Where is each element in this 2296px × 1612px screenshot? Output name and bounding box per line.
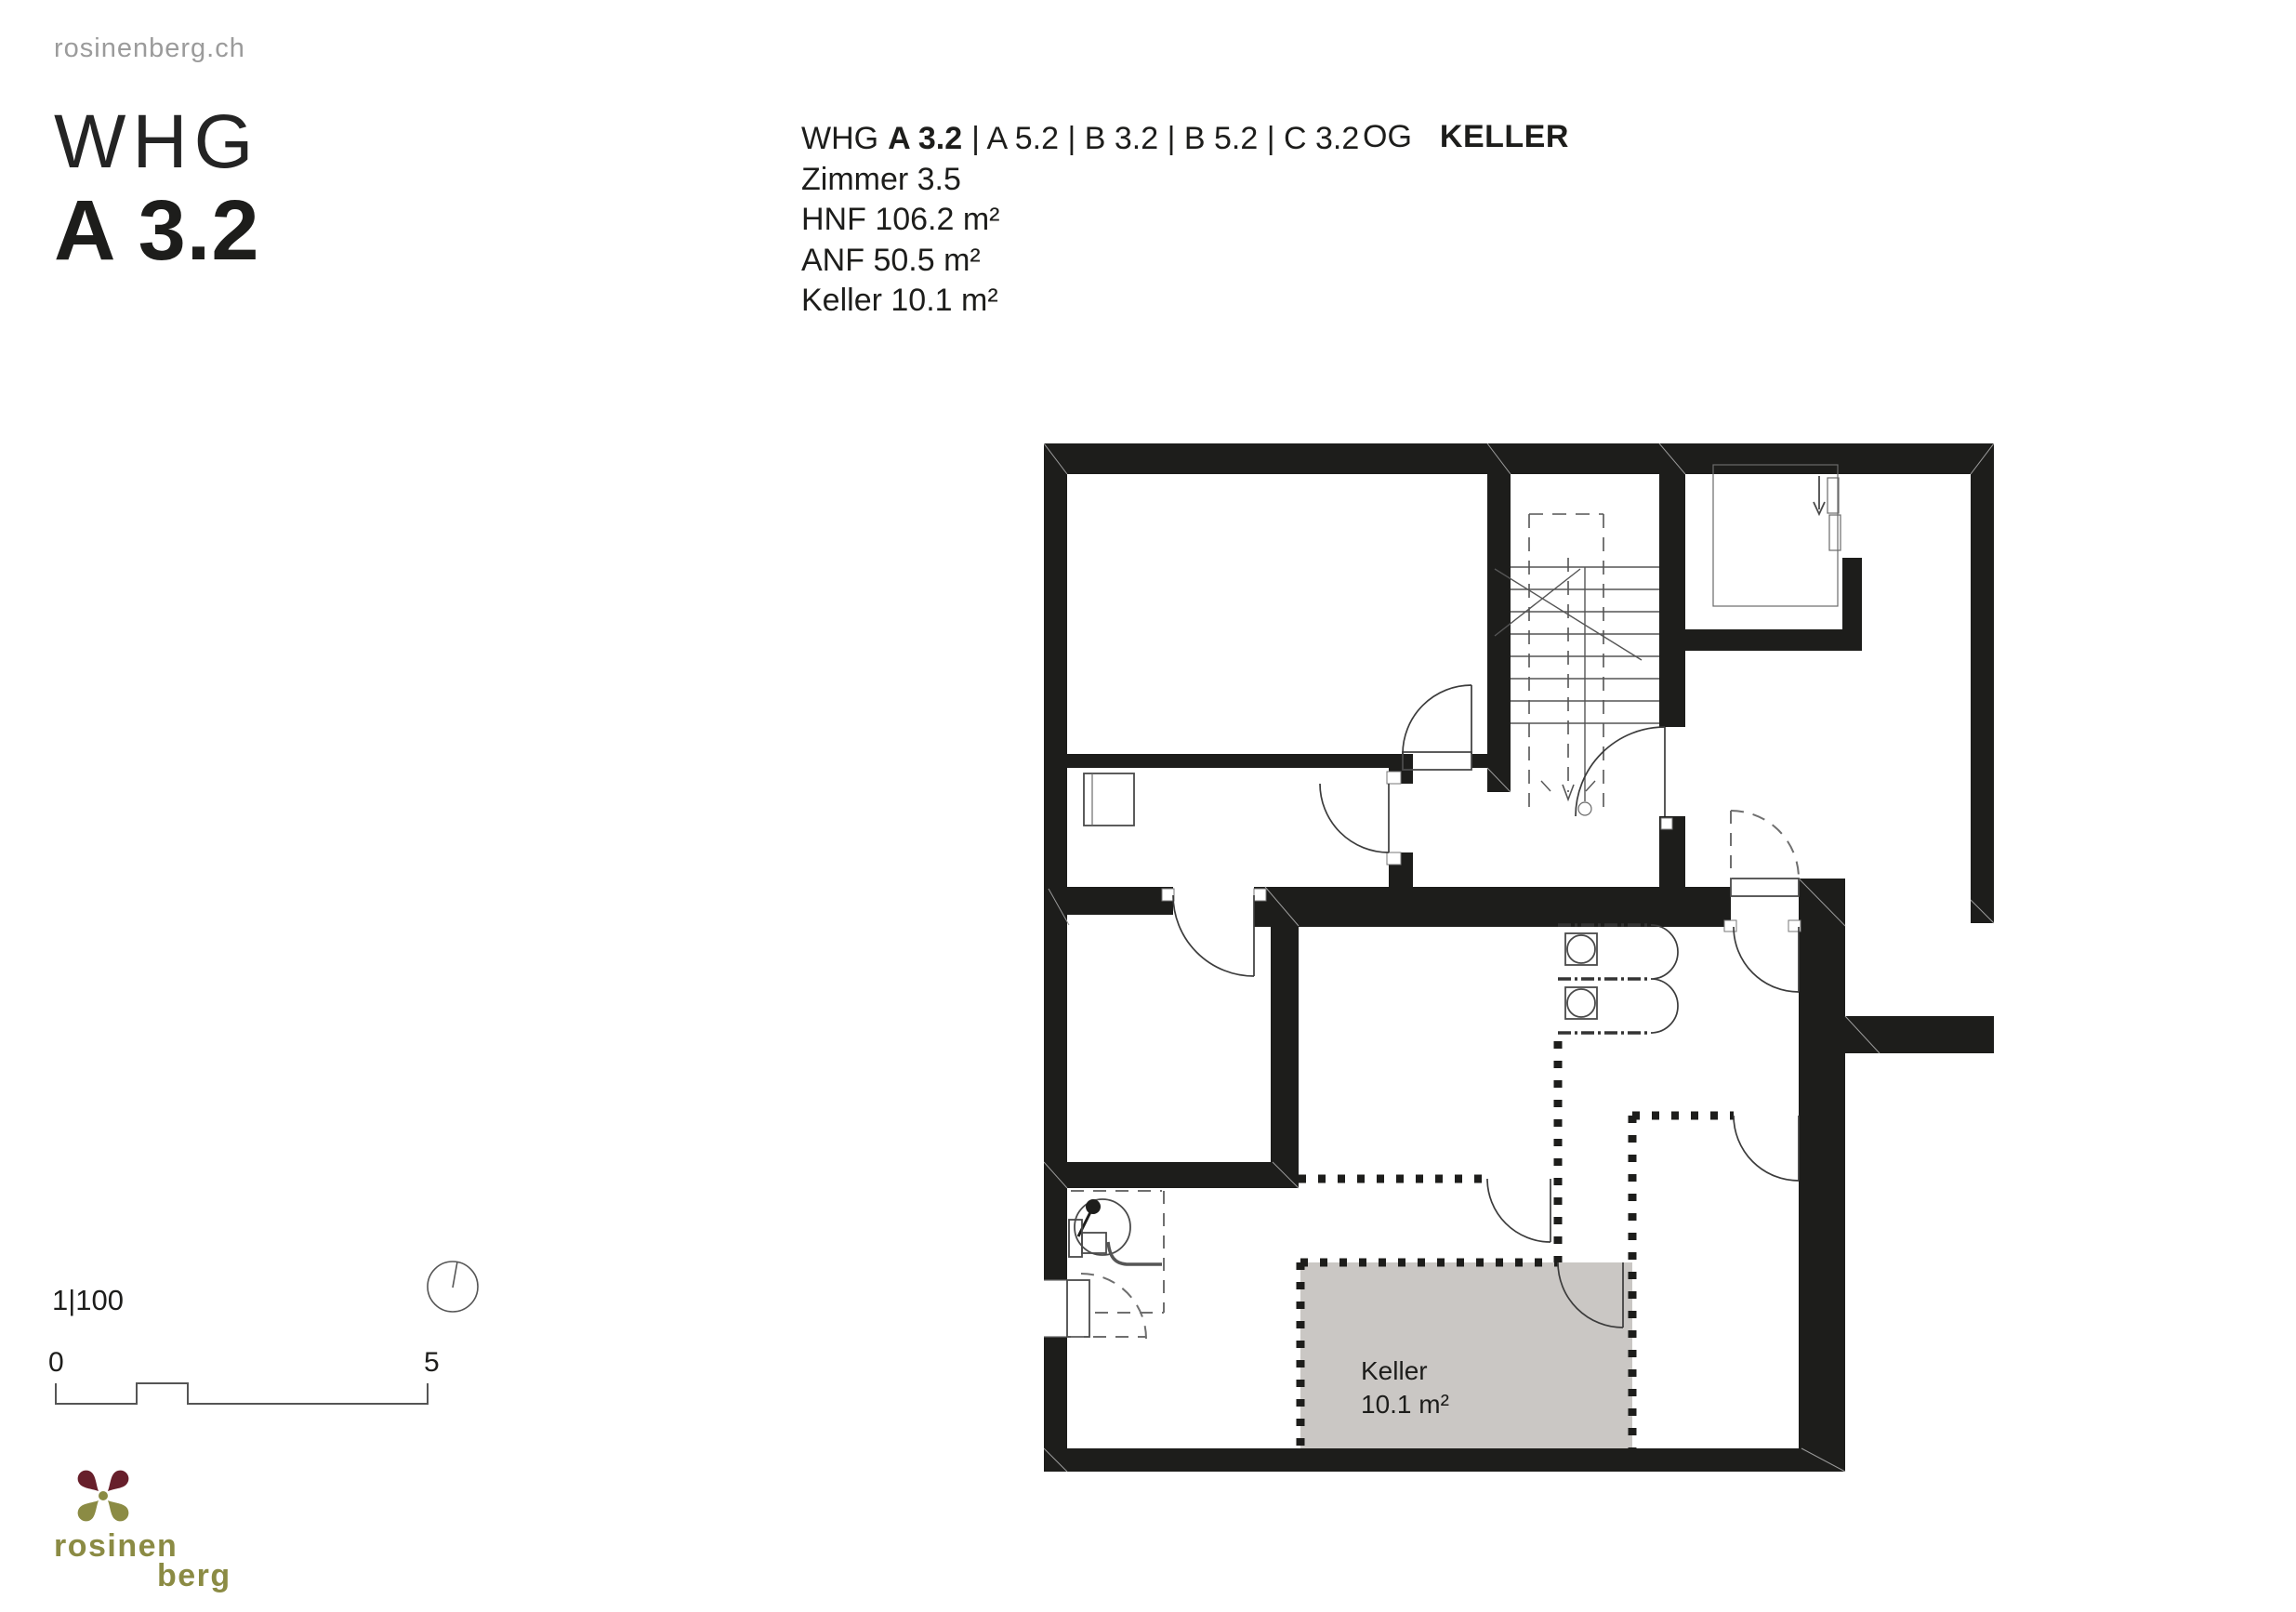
- scale-end: 5: [424, 1347, 440, 1379]
- floorplan-drawing: Keller 10.1 m²: [1044, 443, 1994, 1472]
- door-room-topleft: [1403, 685, 1471, 770]
- laundry-niche: [1558, 925, 1678, 1033]
- info-anf: ANF 50.5 m²: [801, 241, 1359, 282]
- logo-word-bottom: berg: [157, 1558, 231, 1594]
- door-corridor-entrance: [1724, 811, 1801, 992]
- page-title-unit: A 3.2: [54, 182, 259, 280]
- door-middle-room: [1320, 772, 1401, 865]
- page-title-whg: WHG: [54, 99, 259, 186]
- lift-shaft: [1713, 465, 1841, 606]
- scale-graphics: [0, 1236, 521, 1450]
- floor-block: OGKELLER: [1363, 119, 1569, 155]
- whg-prefix: WHG: [801, 121, 878, 156]
- scale-bar: [56, 1383, 428, 1404]
- whg-current: A 3.2: [888, 121, 962, 156]
- info-keller: Keller 10.1 m²: [801, 281, 1359, 322]
- keller-highlight: [1300, 1262, 1632, 1450]
- scale-start: 0: [48, 1347, 64, 1379]
- info-hnf: HNF 106.2 m²: [801, 200, 1359, 241]
- info-block: WHGA 3.2| A 5.2 | B 3.2 | B 5.2 | C 3.2 …: [801, 119, 1359, 322]
- door-room-lowerleft: [1162, 889, 1266, 976]
- logo-icon: [51, 1464, 163, 1534]
- info-line-units: WHGA 3.2| A 5.2 | B 3.2 | B 5.2 | C 3.2: [801, 119, 1359, 160]
- window-opening: [1044, 1280, 1089, 1337]
- duct-shaft: [1084, 773, 1134, 826]
- info-rooms: Zimmer 3.5: [801, 160, 1359, 201]
- site-label: rosinenberg.ch: [54, 33, 245, 64]
- scale-ratio: 1|100: [52, 1284, 124, 1317]
- floor-value: KELLER: [1440, 119, 1569, 154]
- logo-center-dot: [99, 1491, 108, 1500]
- north-indicator-icon: [428, 1262, 478, 1312]
- floorplan-sheet: rosinenberg.ch WHG A 3.2 WHGA 3.2| A 5.2…: [0, 0, 2296, 1612]
- floor-label: OG: [1363, 119, 1412, 154]
- whg-others: | A 5.2 | B 3.2 | B 5.2 | C 3.2: [971, 121, 1359, 156]
- keller-room-area: 10.1 m²: [1361, 1390, 1449, 1419]
- keller-room-label: Keller: [1361, 1356, 1428, 1385]
- door-stair-exit: [1576, 727, 1672, 829]
- sink-fixture: [1069, 1199, 1162, 1264]
- staircase: [1495, 514, 1659, 815]
